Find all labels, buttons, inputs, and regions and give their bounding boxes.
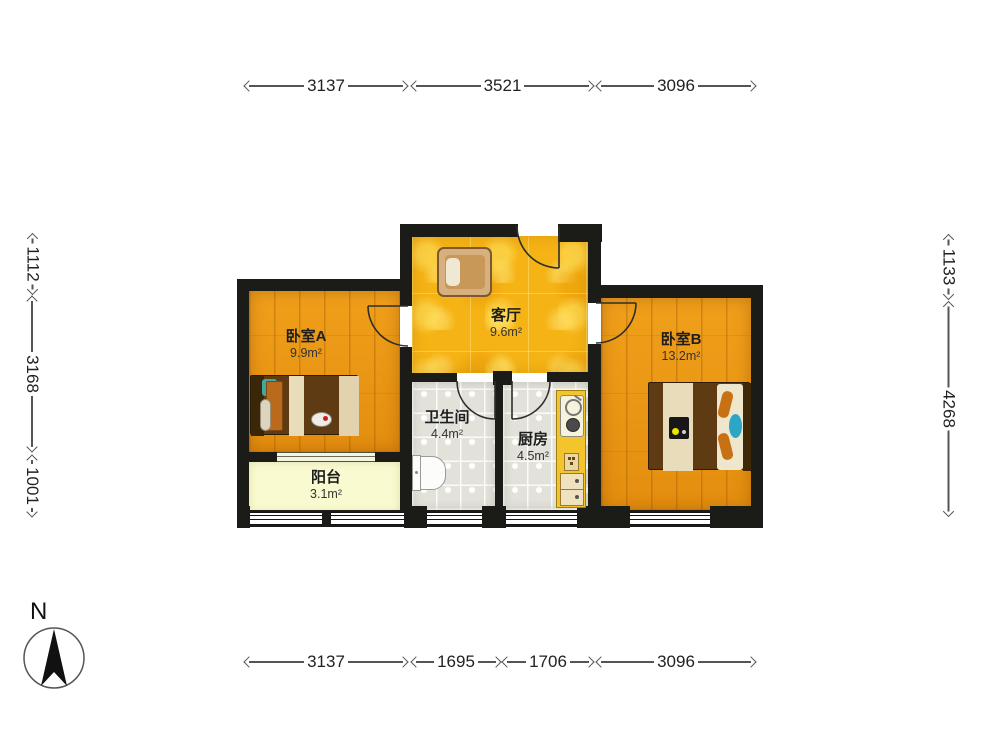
pillar-south-1 — [237, 506, 250, 528]
room-area: 3.1m² — [310, 486, 342, 503]
arrow-right-icon — [583, 80, 594, 91]
dim-value: 4268 — [939, 390, 959, 428]
label-living-room: 客厅 9.6m² — [490, 307, 522, 341]
kitchen-faucet-ring — [565, 399, 582, 416]
dim-bottom-1: 3137 — [245, 652, 407, 672]
window-bathroom — [427, 512, 482, 525]
bed-a-sheet-stripe — [289, 376, 304, 436]
bed-a-rug-dot — [323, 416, 328, 421]
arrow-left-icon — [410, 656, 421, 667]
arrow-left-icon — [243, 656, 254, 667]
arrow-left-icon — [410, 80, 421, 91]
cabinet-knob-1 — [575, 479, 579, 483]
label-balcony: 阳台 3.1m² — [310, 469, 342, 503]
room-area: 4.4m² — [424, 426, 469, 443]
dim-value: 1706 — [529, 652, 567, 672]
toilet — [412, 455, 446, 491]
dim-value: 1112 — [23, 246, 43, 281]
wall-balcony-divider-left — [237, 452, 277, 462]
pillar-south-6 — [710, 506, 763, 528]
arrow-left-icon — [26, 295, 37, 306]
window-balcony-right — [331, 512, 404, 525]
arrow-left-icon — [243, 80, 254, 91]
arrow-right-icon — [490, 656, 501, 667]
rack-dot-3 — [570, 462, 573, 465]
arrow-right-icon — [745, 656, 756, 667]
dim-value: 3137 — [307, 76, 345, 96]
room-name: 厨房 — [517, 431, 549, 448]
armchair-cushion — [446, 258, 460, 286]
arrow-right-icon — [27, 284, 38, 295]
bed-a-rug — [311, 412, 332, 427]
arrow-right-icon — [26, 441, 37, 452]
arrow-left-icon — [943, 234, 954, 245]
bed-a-body-pillow — [260, 399, 271, 431]
bed-b-tray — [669, 417, 689, 439]
dim-top-1: 3137 — [245, 76, 407, 96]
window-kitchen — [506, 512, 577, 525]
pillar-south-2 — [322, 511, 331, 526]
arrow-right-icon — [745, 80, 756, 91]
dim-right-2: 4268 — [939, 303, 959, 516]
pillar-south-3 — [404, 506, 427, 528]
rack-dot-1 — [568, 457, 571, 460]
cabinet-knob-2 — [575, 495, 579, 499]
bed-b-tray-dot-white — [682, 430, 686, 434]
dim-bottom-3: 1706 — [503, 652, 593, 672]
wall-living-east-lower — [588, 344, 601, 510]
dim-value: 1133 — [939, 249, 959, 286]
wall-outer-west — [237, 279, 249, 527]
dim-right-1: 1133 — [939, 236, 959, 299]
armchair — [437, 247, 492, 297]
bed-b-cushion-teal — [729, 414, 742, 438]
room-name: 卧室B — [661, 331, 702, 348]
arrow-right-icon — [26, 506, 37, 517]
bed-b — [648, 382, 750, 470]
bed-a-foot-stripe — [339, 376, 359, 436]
dim-value: 3521 — [484, 76, 522, 96]
arrow-left-icon — [27, 233, 38, 244]
kitchen-burner — [566, 418, 580, 432]
label-kitchen: 厨房 4.5m² — [517, 431, 549, 465]
arrow-left-icon — [595, 656, 606, 667]
arrow-right-icon — [397, 80, 408, 91]
dim-left-2: 3168 — [22, 297, 42, 451]
dim-bottom-2: 1695 — [412, 652, 500, 672]
dim-left-3: 1001 — [22, 456, 42, 516]
wall-bedroom-a-north — [237, 279, 412, 291]
arrow-right-icon — [397, 656, 408, 667]
room-area: 9.9m² — [286, 345, 327, 362]
dim-value: 3096 — [657, 652, 695, 672]
label-bathroom: 卫生间 4.4m² — [424, 409, 469, 443]
label-bedroom-a: 卧室A 9.9m² — [286, 328, 327, 362]
dim-value: 1695 — [437, 652, 475, 672]
bed-b-headboard — [743, 383, 751, 471]
dim-value: 3137 — [307, 652, 345, 672]
bed-b-tray-dot-yellow — [672, 428, 679, 435]
dim-value: 3168 — [22, 355, 42, 393]
wall-outer-east — [751, 285, 763, 527]
wall-bath-kitchen-divider — [495, 381, 503, 510]
bed-a — [250, 375, 358, 435]
wall-bedroom-b-north — [588, 285, 763, 298]
arrow-left-icon — [501, 656, 512, 667]
room-area: 4.5m² — [517, 448, 549, 465]
window-bedroom-b — [630, 512, 710, 525]
room-name: 卧室A — [286, 328, 327, 345]
compass: N — [14, 598, 94, 698]
room-name: 阳台 — [310, 469, 342, 486]
dim-top-2: 3521 — [412, 76, 593, 96]
kitchen-cabinet-bottom — [560, 489, 584, 506]
wall-living-west-upper — [400, 224, 412, 306]
window-balcony-left — [250, 512, 322, 525]
label-bedroom-b: 卧室B 13.2m² — [661, 331, 702, 365]
arrow-left-icon — [595, 80, 606, 91]
wall-bath-north — [412, 373, 457, 382]
window-bedroom-a-balcony — [277, 452, 375, 462]
wall-living-west-lower — [400, 347, 412, 510]
arrow-left-icon — [26, 454, 37, 465]
rack-dot-2 — [572, 457, 575, 460]
dim-bottom-4: 3096 — [597, 652, 755, 672]
wall-kitchen-north — [547, 372, 588, 382]
room-area: 9.6m² — [490, 324, 522, 341]
pillar-south-4 — [482, 506, 506, 528]
dim-value: 3096 — [657, 76, 695, 96]
arrow-right-icon — [943, 289, 954, 300]
compass-rose-icon — [14, 598, 94, 698]
kitchen-cabinet-top — [560, 473, 584, 490]
kitchen-counter — [556, 390, 586, 508]
dim-left-1: 1112 — [23, 235, 43, 294]
room-name: 客厅 — [490, 307, 522, 324]
compass-north-label: N — [30, 598, 47, 626]
wall-top-living-left — [400, 224, 518, 237]
room-name: 卫生间 — [424, 409, 469, 426]
wall-balcony-divider-right — [375, 452, 412, 462]
room-area: 13.2m² — [661, 348, 702, 365]
toilet-button — [415, 471, 418, 474]
dim-top-3: 3096 — [597, 76, 755, 96]
kitchen-sink-unit — [560, 395, 584, 437]
toilet-bowl — [420, 456, 446, 490]
floor-plan-canvas: 卧室A 9.9m² 客厅 9.6m² 卧室B 13.2m² 卫生间 4.4m² … — [0, 0, 1000, 750]
arrow-right-icon — [943, 506, 954, 517]
pillar-south-5 — [577, 506, 630, 528]
kitchen-utensil-rack — [564, 453, 579, 471]
arrow-right-icon — [583, 656, 594, 667]
arrow-left-icon — [943, 301, 954, 312]
dim-value: 1001 — [22, 467, 42, 505]
